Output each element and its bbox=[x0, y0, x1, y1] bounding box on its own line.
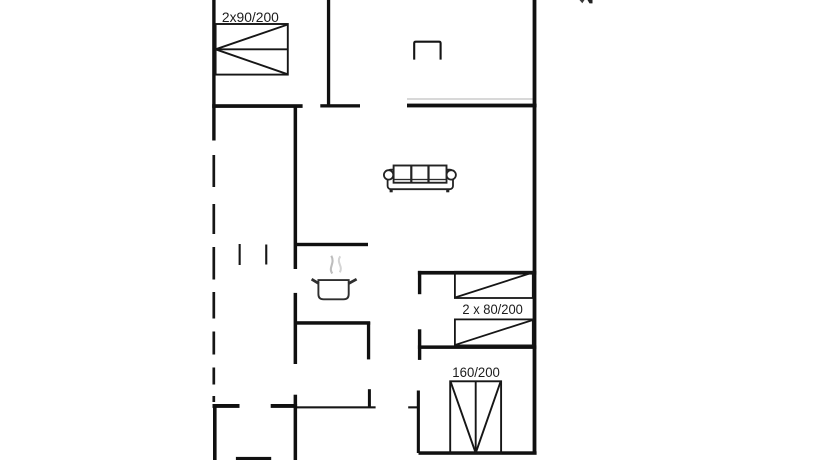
svg-text:160/200: 160/200 bbox=[452, 365, 500, 380]
svg-text:2x90/200: 2x90/200 bbox=[222, 10, 279, 25]
svg-text:2 x 80/200: 2 x 80/200 bbox=[462, 302, 523, 317]
